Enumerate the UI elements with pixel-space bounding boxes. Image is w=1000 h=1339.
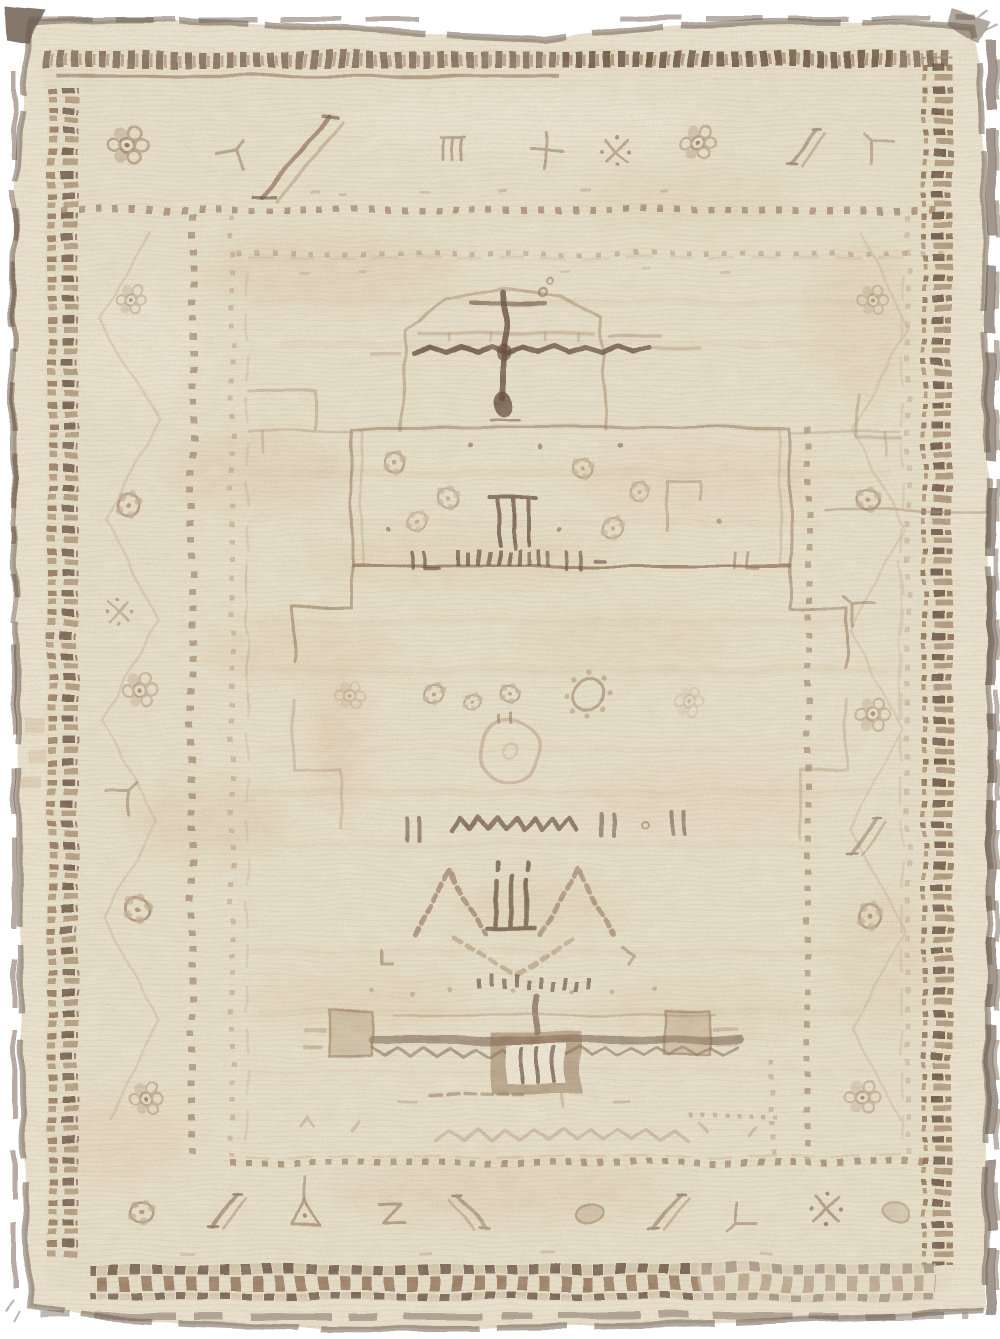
rug-image: Antique beige and brown tribal wool rug xyxy=(0,0,1000,1339)
rug-photograph: Antique beige and brown tribal wool rug xyxy=(0,0,1000,1339)
pile-highlight-texture xyxy=(0,0,1000,1339)
rug-body xyxy=(0,0,1000,1339)
